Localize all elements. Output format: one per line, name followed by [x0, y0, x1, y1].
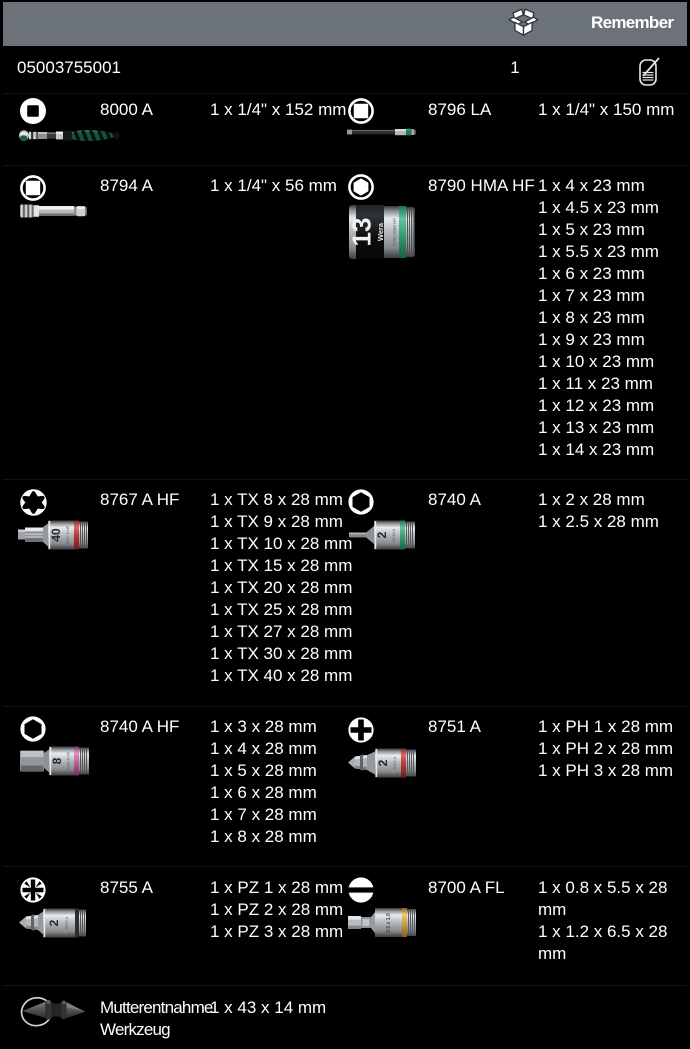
svg-text:8740 A HF: 8740 A HF — [66, 751, 71, 770]
svg-text:8790 HMA HF: 8790 HMA HF — [392, 218, 397, 247]
svg-text:Wera: Wera — [376, 222, 385, 241]
svg-text:2: 2 — [376, 759, 390, 766]
svg-text:40: 40 — [49, 528, 63, 542]
svg-text:2: 2 — [47, 919, 61, 926]
svg-text:5.5 x 1.0: 5.5 x 1.0 — [386, 913, 392, 933]
svg-text:8740 A: 8740 A — [391, 528, 396, 541]
svg-text:8: 8 — [50, 757, 64, 764]
svg-text:8751 A: 8751 A — [392, 756, 397, 769]
svg-text:8767 A HF: 8767 A HF — [65, 525, 70, 544]
svg-text:2: 2 — [375, 531, 389, 538]
svg-text:8755 A: 8755 A — [64, 916, 69, 929]
svg-text:13: 13 — [349, 218, 377, 247]
